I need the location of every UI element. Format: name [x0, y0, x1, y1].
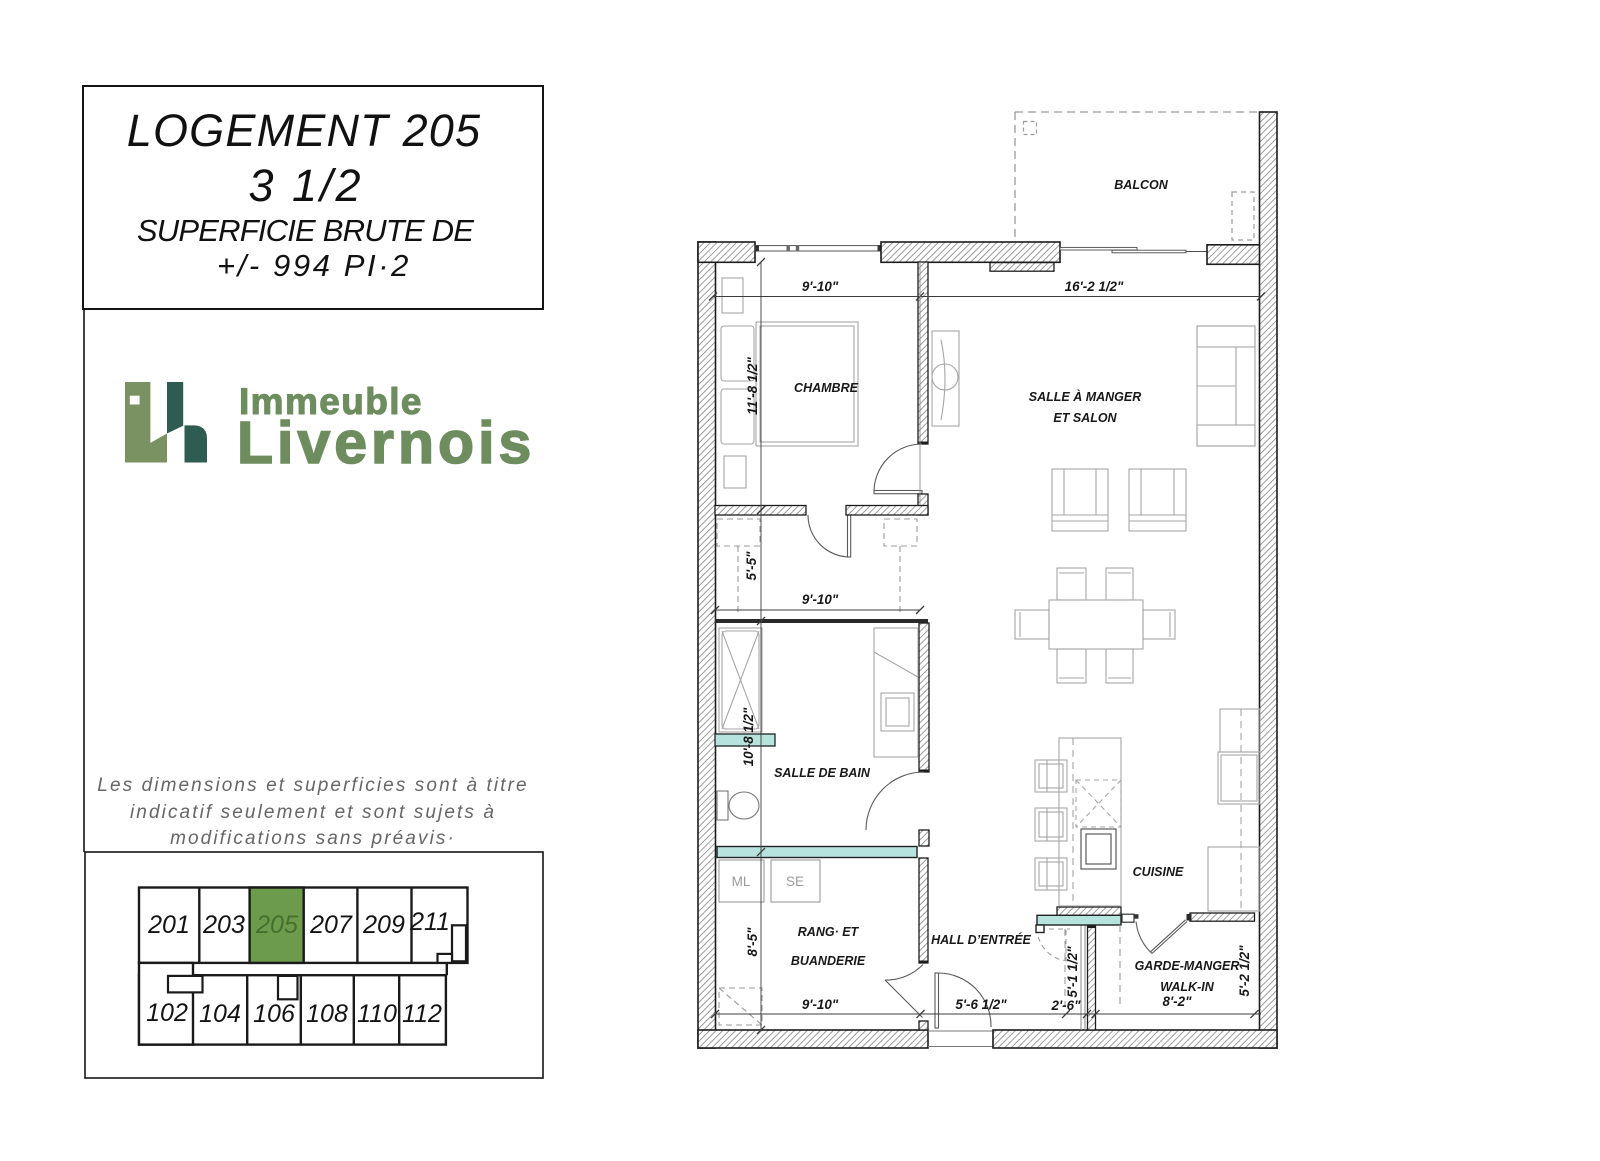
svg-text:RANG· ET: RANG· ET: [798, 925, 860, 939]
svg-text:ML: ML: [732, 874, 751, 889]
svg-text:5'-6 1/2": 5'-6 1/2": [955, 997, 1007, 1012]
svg-text:Les dimensions et superficies: Les dimensions et superficies sont à tit…: [97, 775, 528, 796]
svg-text:201: 201: [147, 911, 190, 939]
svg-text:modifications sans préavis·: modifications sans préavis·: [170, 828, 456, 849]
svg-text:BALCON: BALCON: [1114, 178, 1168, 192]
svg-text:indicatif seulement et sont su: indicatif seulement et sont sujets à: [130, 802, 496, 823]
svg-text:209: 209: [362, 911, 405, 939]
svg-text:207: 207: [309, 911, 353, 939]
svg-text:9'-10": 9'-10": [802, 592, 839, 607]
svg-text:9'-10": 9'-10": [802, 279, 839, 294]
svg-text:+/- 994 PI·2: +/- 994 PI·2: [217, 248, 411, 283]
svg-text:3 1/2: 3 1/2: [248, 160, 363, 211]
svg-text:Livernois: Livernois: [237, 410, 535, 476]
svg-text:BUANDERIE: BUANDERIE: [791, 954, 866, 968]
svg-text:9'-10": 9'-10": [802, 997, 839, 1012]
svg-text:211: 211: [409, 908, 450, 936]
svg-text:203: 203: [202, 911, 245, 939]
svg-text:104: 104: [199, 1000, 241, 1028]
svg-text:106: 106: [253, 1000, 295, 1028]
svg-text:8'-5": 8'-5": [745, 927, 760, 957]
svg-text:5'-1 1/2": 5'-1 1/2": [1065, 946, 1080, 998]
svg-text:HALL D’ENTRÉE: HALL D’ENTRÉE: [931, 932, 1031, 947]
svg-text:CUISINE: CUISINE: [1133, 865, 1184, 879]
svg-text:GARDE-MANGER: GARDE-MANGER: [1135, 959, 1240, 973]
svg-text:5'-5": 5'-5": [744, 551, 759, 581]
svg-text:2'-6": 2'-6": [1051, 998, 1082, 1013]
svg-text:LOGEMENT 205: LOGEMENT 205: [127, 105, 482, 156]
svg-text:10'-8 1/2": 10'-8 1/2": [741, 707, 756, 766]
svg-text:16'-2 1/2": 16'-2 1/2": [1065, 279, 1124, 294]
svg-text:11'-8 1/2": 11'-8 1/2": [745, 357, 760, 415]
svg-text:5'-2 1/2": 5'-2 1/2": [1237, 945, 1252, 997]
svg-text:102: 102: [146, 999, 188, 1027]
svg-text:SALLE À MANGER: SALLE À MANGER: [1029, 389, 1142, 404]
svg-text:WALK-IN: WALK-IN: [1160, 980, 1214, 994]
svg-text:CHAMBRE: CHAMBRE: [794, 381, 859, 395]
svg-text:SE: SE: [786, 874, 804, 889]
svg-text:SALLE DE BAIN: SALLE DE BAIN: [774, 766, 871, 780]
svg-text:SUPERFICIE BRUTE DE: SUPERFICIE BRUTE DE: [137, 213, 474, 248]
svg-text:108: 108: [306, 1000, 348, 1028]
svg-text:ET SALON: ET SALON: [1053, 411, 1117, 425]
svg-text:205: 205: [255, 911, 298, 939]
svg-text:110: 110: [357, 1000, 397, 1028]
svg-text:112: 112: [402, 1000, 442, 1028]
svg-text:8'-2": 8'-2": [1163, 994, 1193, 1009]
